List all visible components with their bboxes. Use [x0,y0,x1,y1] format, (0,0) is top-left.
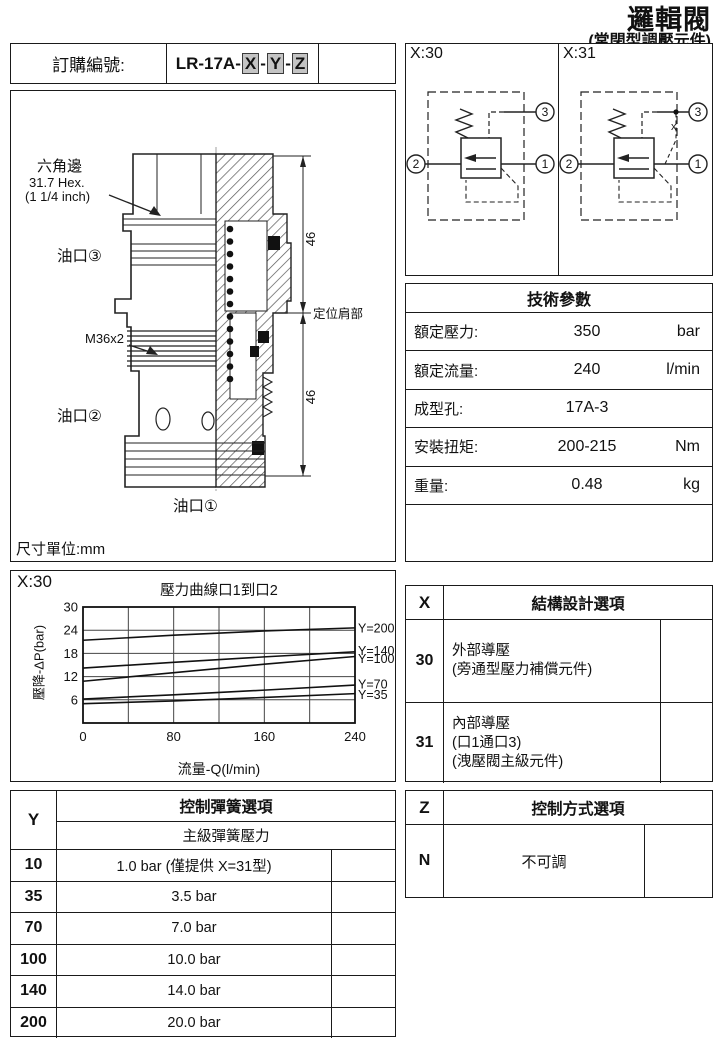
order-code: LR-17A-X-Y-Z [167,44,319,83]
y-option-code: 200 [11,1008,57,1039]
port3-label: 油口③ [57,247,102,265]
z-options-title: 控制方式選項 [444,791,712,824]
empty-cell [331,976,395,1007]
hex-label-line3: (1 1/4 inch) [25,189,90,204]
param-unit: kg [642,476,712,494]
param-label: 安裝扭矩: [406,436,532,457]
param-value: 240 [532,361,642,379]
svg-text:6: 6 [71,692,78,707]
desc-line: (洩壓閥主級元件) [452,753,660,772]
dim-46-bottom: 46 [303,390,318,404]
y-options-table: Y 控制彈簧選項 主級彈簧壓力 10 1.0 bar (僅提供 X=31型) 3… [10,790,396,1037]
empty-cell [644,825,712,897]
svg-text:Y=200: Y=200 [358,622,395,636]
relief-valve-symbol-x31: x 1 2 3 [559,68,714,254]
tech-params-title: 技術參數 [406,284,712,313]
empty-cell [660,703,712,783]
schematic-x30: X:30 1 2 3 [406,44,559,275]
param-label: 額定流量: [406,360,532,381]
datasheet-page: 邏輯閥 (常閉型調壓元件) 訂購編號: LR-17A-X-Y-Z [0,0,715,1039]
param-label: 重量: [406,475,532,496]
z-options-table: Z 控制方式選項 N 不可調 [405,790,713,898]
cross-hole [202,412,214,430]
y-option-code: 10 [11,850,57,881]
svg-text:80: 80 [166,729,180,744]
y-option-code: 35 [11,882,57,913]
desc-line: (旁通型壓力補償元件) [452,661,660,680]
thread-label: M36x2 [85,331,124,346]
table-row: 35 3.5 bar [11,881,395,913]
port-3-number: 3 [695,105,702,119]
y-option-value: 3.5 bar [57,882,331,913]
cross-hole [156,408,170,430]
hex-label-line1: 六角邊 [37,158,82,175]
y-options-subtitle: 主級彈簧壓力 [57,821,395,849]
y-options-title: 控制彈簧選項 [57,791,395,822]
y-option-value: 7.0 bar [57,913,331,944]
svg-text:Y=35: Y=35 [358,688,388,702]
empty-cell [331,882,395,913]
table-row: 200 20.0 bar [11,1007,395,1039]
port2-label: 油口② [57,407,102,425]
dimension-unit-note: 尺寸單位:mm [16,538,105,559]
schematic-x30-label: X:30 [410,45,443,63]
order-code-prefix: LR-17A- [176,54,241,74]
schematic-x31: X:31 x 1 2 3 [559,44,712,275]
port-1-number: 1 [695,157,702,171]
svg-text:Y=100: Y=100 [358,652,395,666]
tech-params-table: 技術參數 額定壓力: 350 bar 額定流量: 240 l/min 成型孔: … [405,283,713,562]
empty-cell [331,1008,395,1039]
x-option-desc: 外部導壓 (旁通型壓力補償元件) [444,620,660,702]
dim-46-top: 46 [303,232,318,246]
y-option-value: 1.0 bar (僅提供 X=31型) [57,850,331,881]
svg-text:18: 18 [64,646,78,661]
table-row: 安裝扭矩: 200-215 Nm [406,428,712,466]
svg-text:0: 0 [79,729,86,744]
table-row: 額定流量: 240 l/min [406,351,712,389]
empty-cell [331,913,395,944]
spring-symbol [456,109,472,138]
relief-valve-symbol-x30: 1 2 3 [406,68,557,254]
y-option-value: 14.0 bar [57,976,331,1007]
x-options-table: X 結構設計選項 30 外部導壓 (旁通型壓力補償元件) 31 內部導壓 (口1… [405,585,713,782]
empty-cell [331,850,395,881]
groove-ridges [131,244,216,265]
param-unit: l/min [642,361,712,379]
port-2-number: 2 [566,157,573,171]
x-option-code: 30 [406,620,444,702]
param-unit: Nm [642,438,712,456]
schematic-x31-label: X:31 [563,45,596,63]
svg-text:160: 160 [253,729,275,744]
param-value: 17A-3 [532,399,642,417]
pilot-junction-dot [673,109,678,114]
table-row: 31 內部導壓 (口1通口3) (洩壓閥主級元件) [406,702,712,783]
chart-box: X:30 壓力曲線口1到口2 壓降-ΔP(bar) 08016024061218… [10,570,396,782]
order-code-sep1: - [260,54,266,74]
y-option-code: 100 [11,945,57,976]
table-row: 額定壓力: 350 bar [406,313,712,351]
port-3-number: 3 [542,105,549,119]
order-number-row: 訂購編號: LR-17A-X-Y-Z [10,43,396,84]
table-row: N 不可調 [406,825,712,897]
table-row: 成型孔: 17A-3 [406,390,712,428]
pressure-curve-chart: 080160240612182430Y=200Y=140Y=100Y=70Y=3… [11,599,395,757]
x-options-title: 結構設計選項 [444,586,712,619]
order-code-z: Z [292,53,308,74]
shoulder-label: 定位肩部 [313,306,363,321]
y-option-code: 140 [11,976,57,1007]
z-option-value: 不可調 [444,825,644,897]
table-row: 10 1.0 bar (僅提供 X=31型) [11,849,395,881]
param-label: 成型孔: [406,398,532,419]
param-unit: bar [642,323,712,341]
y-option-value: 10.0 bar [57,945,331,976]
empty-cell [331,945,395,976]
param-value: 0.48 [532,476,642,494]
x-option-desc: 內部導壓 (口1通口3) (洩壓閥主級元件) [444,703,660,783]
order-number-label: 訂購編號: [11,44,167,83]
svg-text:12: 12 [64,669,78,684]
desc-line: (口1通口3) [452,734,660,753]
pilot-thread [263,377,272,417]
hex-label-line2: 31.7 Hex. [29,175,85,190]
order-empty-cell [319,44,395,83]
port-1-number: 1 [542,157,549,171]
param-value: 350 [532,323,642,341]
z-option-code: N [406,825,444,897]
desc-line: 內部導壓 [452,715,660,734]
port-2-number: 2 [413,157,420,171]
x-options-header: X 結構設計選項 [406,586,712,620]
y-option-code: 70 [11,913,57,944]
valve-section-drawing: 46 46 定位肩部 六角邊 31.7 Hex. (1 1/4 inch) 油口… [11,91,393,541]
y-column-header: Y [11,791,57,849]
desc-line: 外部導壓 [452,642,660,661]
internal-pilot-line [665,112,676,164]
chart-title: 壓力曲線口1到口2 [83,579,355,600]
order-code-y: Y [267,53,284,74]
chart-x-axis-label: 流量-Q(l/min) [83,759,355,779]
x-column-header: X [406,586,444,619]
svg-text:30: 30 [64,600,78,615]
port1-label: 油口① [173,497,218,515]
valve-drawing-box: 46 46 定位肩部 六角邊 31.7 Hex. (1 1/4 inch) 油口… [10,90,396,562]
table-row: 140 14.0 bar [11,975,395,1007]
empty-cell [660,620,712,702]
param-value: 200-215 [532,438,642,456]
table-row: 重量: 0.48 kg [406,467,712,505]
table-row: 30 外部導壓 (旁通型壓力補償元件) [406,620,712,702]
svg-text:24: 24 [64,623,78,638]
table-row: 70 7.0 bar [11,912,395,944]
orifice-x-mark: x [671,121,677,133]
schematic-box: X:30 1 2 3 X:31 [405,43,713,276]
order-code-x: X [242,53,259,74]
order-code-sep2: - [285,54,291,74]
x-option-code: 31 [406,703,444,783]
svg-text:240: 240 [344,729,366,744]
y-option-value: 20.0 bar [57,1008,331,1039]
chart-box-label: X:30 [17,572,52,592]
table-row: 100 10.0 bar [11,944,395,976]
spring-symbol [609,109,625,138]
z-options-header: Z 控制方式選項 [406,791,712,825]
param-label: 額定壓力: [406,321,532,342]
z-column-header: Z [406,791,444,824]
